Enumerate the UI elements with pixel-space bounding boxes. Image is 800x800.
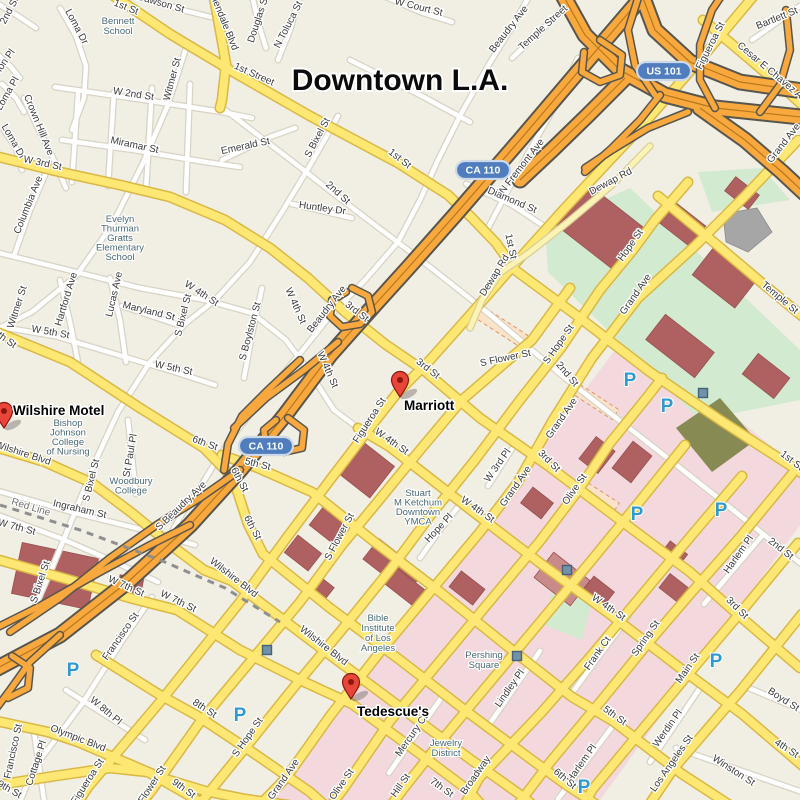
place-label: Wilshire Motel [13,403,104,418]
highway-badge: CA 110 [456,161,510,179]
poi-label: District [431,748,460,759]
map-viewport[interactable]: Dawson St1st StLoma DrGlendale BlvdDougl… [0,0,800,800]
parking-icon: P [715,500,728,521]
map-canvas[interactable]: Dawson St1st StLoma DrGlendale BlvdDougl… [0,0,800,800]
parking-icon: P [624,370,637,391]
parking-icon: P [710,651,723,672]
poi-label: School [105,252,134,263]
parking-icon: P [67,660,80,681]
map-title: Downtown L.A. [292,64,509,97]
metro-station-icon [263,646,272,655]
svg-text:CA 110: CA 110 [466,165,501,177]
parking-icon: P [661,396,674,417]
highway-badge: CA 110 [239,437,293,455]
place-label: Marriott [404,398,455,413]
poi-label: College [115,486,147,497]
poi-label: of Nursing [46,447,89,458]
parking-icon: P [578,777,591,798]
metro-station-icon [513,652,522,661]
parking-icon: P [234,705,247,726]
parking-icon: P [631,504,644,525]
poi-label: Square [469,660,500,671]
place-label: Tedescue's [357,704,429,719]
poi-label: School [103,26,132,37]
svg-text:CA 110: CA 110 [249,441,284,453]
poi-label: YMCA [404,517,432,528]
metro-station-icon [699,389,708,398]
metro-station-icon [563,566,572,575]
poi-label: Angeles [361,643,396,654]
svg-text:US 101: US 101 [646,66,681,78]
highway-badge: US 101 [637,62,691,80]
